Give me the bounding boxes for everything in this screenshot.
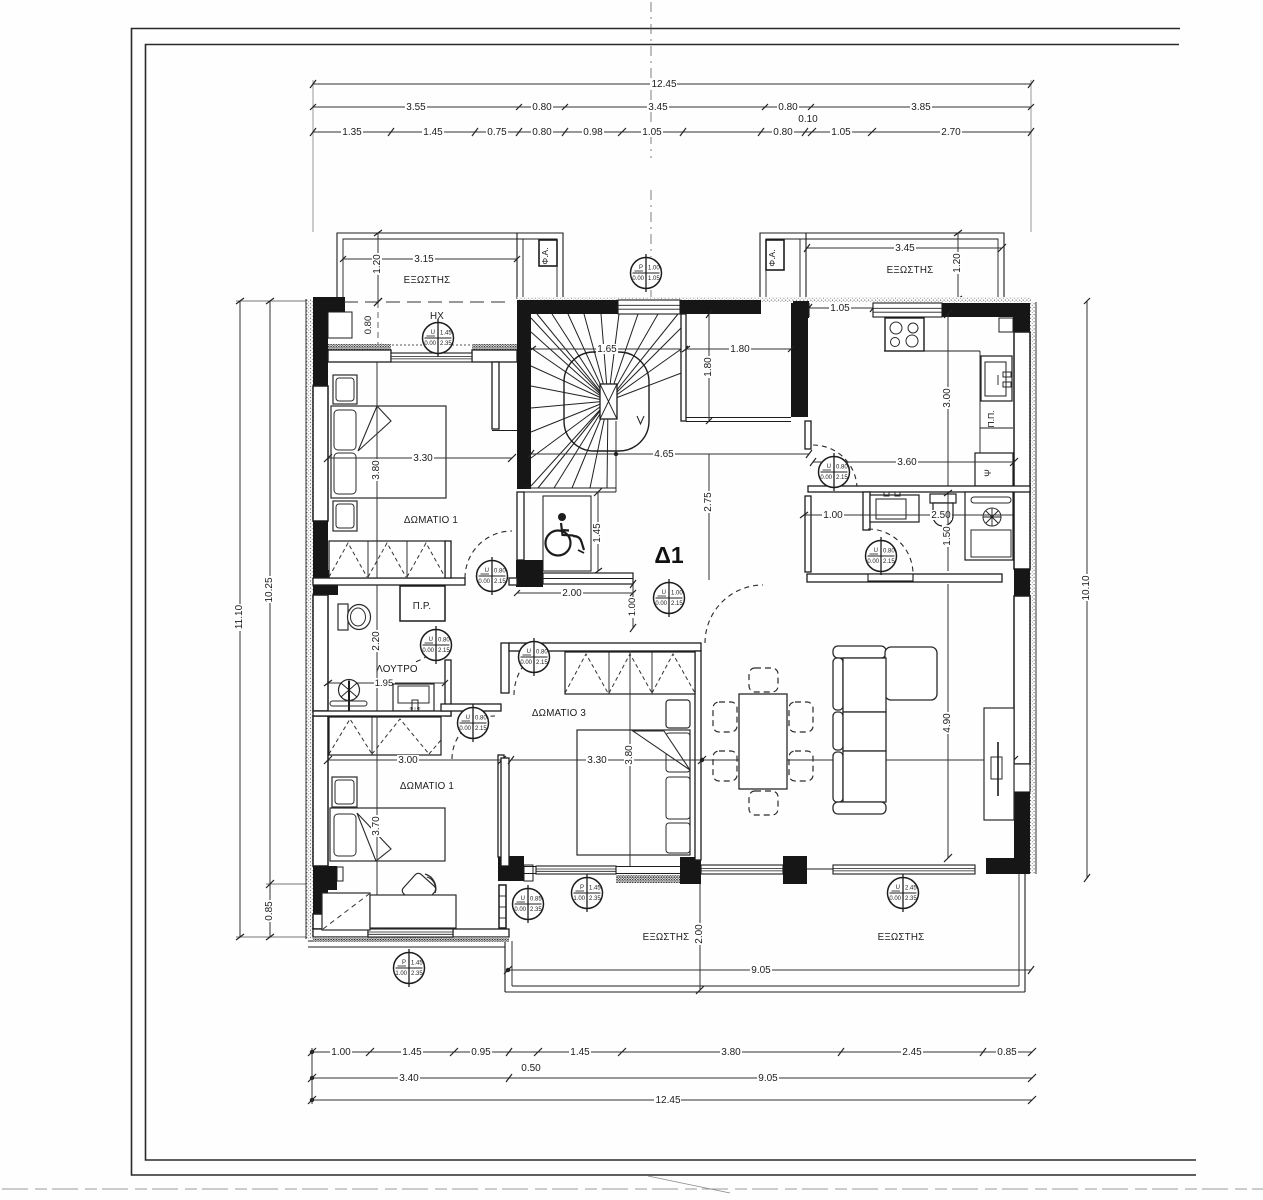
svg-text:0.00: 0.00 bbox=[655, 601, 667, 607]
svg-text:10.10: 10.10 bbox=[1081, 575, 1092, 600]
svg-text:U: U bbox=[874, 548, 878, 554]
svg-text:ΔΩΜΑΤΙΟ 3: ΔΩΜΑΤΙΟ 3 bbox=[532, 708, 586, 719]
svg-text:U: U bbox=[896, 885, 900, 891]
svg-text:1.05: 1.05 bbox=[831, 127, 851, 138]
svg-text:1.45: 1.45 bbox=[592, 523, 603, 543]
svg-text:Π.Π.: Π.Π. bbox=[986, 411, 996, 428]
svg-text:1.45: 1.45 bbox=[423, 127, 443, 138]
svg-text:0.75: 0.75 bbox=[487, 127, 507, 138]
svg-text:0.80: 0.80 bbox=[532, 102, 552, 113]
svg-text:0.00: 0.00 bbox=[459, 726, 471, 732]
svg-text:0.80: 0.80 bbox=[363, 316, 374, 335]
svg-text:0.00: 0.00 bbox=[889, 896, 901, 902]
svg-text:0.80: 0.80 bbox=[438, 638, 450, 644]
svg-text:3.80: 3.80 bbox=[624, 745, 635, 765]
svg-text:2.45: 2.45 bbox=[905, 886, 917, 892]
svg-text:2.75: 2.75 bbox=[703, 492, 714, 512]
svg-text:3.60: 3.60 bbox=[897, 457, 917, 468]
svg-text:Φ.Α.: Φ.Α. bbox=[540, 247, 550, 264]
svg-text:U: U bbox=[466, 715, 470, 721]
svg-text:1.95: 1.95 bbox=[375, 678, 394, 689]
svg-text:0.85: 0.85 bbox=[530, 897, 542, 903]
svg-text:3.55: 3.55 bbox=[406, 102, 426, 113]
svg-text:12.45: 12.45 bbox=[651, 79, 676, 90]
svg-text:1.00: 1.00 bbox=[823, 510, 843, 521]
svg-text:1.05: 1.05 bbox=[648, 276, 660, 282]
svg-text:ΕΞΩΣΤΗΣ: ΕΞΩΣΤΗΣ bbox=[404, 275, 451, 286]
svg-text:0.80: 0.80 bbox=[778, 102, 798, 113]
svg-text:0.10: 0.10 bbox=[798, 114, 818, 125]
svg-text:U: U bbox=[485, 568, 489, 574]
svg-text:1.80: 1.80 bbox=[730, 344, 750, 355]
svg-text:2.15: 2.15 bbox=[836, 475, 848, 481]
svg-text:2.15: 2.15 bbox=[475, 726, 487, 732]
svg-text:3.30: 3.30 bbox=[587, 755, 607, 766]
svg-text:0.00: 0.00 bbox=[478, 579, 490, 585]
svg-text:2.15: 2.15 bbox=[536, 660, 548, 666]
svg-text:3.80: 3.80 bbox=[371, 460, 382, 480]
svg-text:0.80: 0.80 bbox=[494, 569, 506, 575]
svg-text:3.85: 3.85 bbox=[911, 102, 931, 113]
svg-text:0.00: 0.00 bbox=[514, 907, 526, 913]
svg-text:3.00: 3.00 bbox=[398, 755, 418, 766]
svg-text:2.35: 2.35 bbox=[440, 341, 452, 347]
svg-text:P: P bbox=[580, 885, 584, 891]
svg-text:11.10: 11.10 bbox=[234, 604, 245, 629]
svg-text:U: U bbox=[662, 590, 666, 596]
svg-text:Π.Ρ.: Π.Ρ. bbox=[413, 601, 432, 612]
svg-text:0.00: 0.00 bbox=[632, 276, 644, 282]
svg-text:1.65: 1.65 bbox=[597, 344, 617, 355]
svg-text:1.45: 1.45 bbox=[589, 886, 601, 892]
svg-text:0.85: 0.85 bbox=[264, 901, 275, 921]
svg-text:3.15: 3.15 bbox=[414, 254, 434, 265]
svg-text:3.00: 3.00 bbox=[942, 388, 953, 408]
svg-text:ΔΩΜΑΤΙΟ 1: ΔΩΜΑΤΙΟ 1 bbox=[404, 515, 458, 526]
svg-text:2.15: 2.15 bbox=[438, 648, 450, 654]
svg-text:3.70: 3.70 bbox=[371, 816, 382, 836]
svg-text:ΕΞΩΣΤΗΣ: ΕΞΩΣΤΗΣ bbox=[887, 265, 934, 276]
svg-text:P: P bbox=[639, 265, 643, 271]
svg-text:1.35: 1.35 bbox=[342, 127, 362, 138]
svg-text:9.05: 9.05 bbox=[751, 965, 771, 976]
svg-text:1.45: 1.45 bbox=[440, 331, 452, 337]
svg-text:1.45: 1.45 bbox=[570, 1047, 590, 1058]
svg-text:2.45: 2.45 bbox=[902, 1047, 922, 1058]
svg-text:1.80: 1.80 bbox=[703, 357, 714, 377]
svg-text:1.50: 1.50 bbox=[942, 526, 953, 546]
svg-text:0.85: 0.85 bbox=[997, 1047, 1017, 1058]
svg-text:2.00: 2.00 bbox=[694, 924, 705, 944]
svg-text:0.00: 0.00 bbox=[520, 660, 532, 666]
svg-text:U: U bbox=[527, 649, 531, 655]
svg-text:U: U bbox=[827, 464, 831, 470]
svg-text:Φ.Α.: Φ.Α. bbox=[767, 249, 777, 266]
svg-text:0.00: 0.00 bbox=[867, 559, 879, 565]
svg-text:0.98: 0.98 bbox=[583, 127, 603, 138]
svg-text:1.00: 1.00 bbox=[395, 971, 407, 977]
svg-text:1.00: 1.00 bbox=[648, 266, 660, 272]
svg-text:ΛΟΥΤΡΟ: ΛΟΥΤΡΟ bbox=[376, 664, 418, 675]
svg-text:0.80: 0.80 bbox=[883, 549, 895, 555]
svg-text:9.05: 9.05 bbox=[758, 1073, 778, 1084]
svg-text:4.65: 4.65 bbox=[654, 449, 674, 460]
svg-text:Δ1: Δ1 bbox=[654, 542, 684, 568]
svg-text:2.15: 2.15 bbox=[494, 579, 506, 585]
svg-text:2.35: 2.35 bbox=[905, 896, 917, 902]
svg-text:0.80: 0.80 bbox=[836, 465, 848, 471]
svg-text:1.00: 1.00 bbox=[331, 1047, 351, 1058]
svg-text:3.80: 3.80 bbox=[721, 1047, 741, 1058]
svg-text:2.20: 2.20 bbox=[371, 631, 382, 651]
svg-text:2.35: 2.35 bbox=[589, 896, 601, 902]
svg-text:2.15: 2.15 bbox=[671, 601, 683, 607]
svg-text:U: U bbox=[431, 330, 435, 336]
svg-text:1.05: 1.05 bbox=[642, 127, 662, 138]
svg-text:ΗΧ: ΗΧ bbox=[430, 311, 444, 322]
svg-text:P: P bbox=[402, 960, 406, 966]
svg-text:0.50: 0.50 bbox=[521, 1063, 541, 1074]
svg-text:3.40: 3.40 bbox=[399, 1073, 419, 1084]
svg-text:3.45: 3.45 bbox=[648, 102, 668, 113]
svg-text:ΕΞΩΣΤΗΣ: ΕΞΩΣΤΗΣ bbox=[643, 932, 690, 943]
svg-text:3.30: 3.30 bbox=[413, 453, 433, 464]
svg-text:U: U bbox=[429, 637, 433, 643]
svg-text:1.05: 1.05 bbox=[830, 303, 850, 314]
svg-text:0.80: 0.80 bbox=[536, 650, 548, 656]
svg-text:0.95: 0.95 bbox=[471, 1047, 491, 1058]
svg-text:Φ Ι Φ: Φ Ι Φ bbox=[410, 706, 421, 711]
svg-text:12.45: 12.45 bbox=[655, 1095, 680, 1106]
svg-text:1.20: 1.20 bbox=[372, 254, 383, 274]
svg-text:2.15: 2.15 bbox=[883, 559, 895, 565]
svg-text:2.00: 2.00 bbox=[562, 588, 582, 599]
svg-text:ΕΞΩΣΤΗΣ: ΕΞΩΣΤΗΣ bbox=[878, 932, 925, 943]
svg-text:1.45: 1.45 bbox=[402, 1047, 422, 1058]
svg-text:4.90: 4.90 bbox=[942, 713, 953, 733]
svg-text:2.70: 2.70 bbox=[941, 127, 961, 138]
svg-text:0.00: 0.00 bbox=[424, 341, 436, 347]
svg-text:ΔΩΜΑΤΙΟ 1: ΔΩΜΑΤΙΟ 1 bbox=[400, 781, 454, 792]
svg-text:0.00: 0.00 bbox=[820, 475, 832, 481]
svg-text:0.80: 0.80 bbox=[773, 127, 793, 138]
svg-text:0.00: 0.00 bbox=[422, 648, 434, 654]
svg-text:1.00: 1.00 bbox=[573, 896, 585, 902]
svg-text:0.80: 0.80 bbox=[475, 716, 487, 722]
svg-text:U: U bbox=[521, 896, 525, 902]
svg-text:0.80: 0.80 bbox=[532, 127, 552, 138]
svg-text:1.00: 1.00 bbox=[671, 591, 683, 597]
svg-text:1.20: 1.20 bbox=[952, 253, 963, 273]
svg-text:3.45: 3.45 bbox=[895, 243, 915, 254]
svg-text:2.35: 2.35 bbox=[411, 971, 423, 977]
svg-text:1.00: 1.00 bbox=[627, 598, 638, 617]
svg-text:1.45: 1.45 bbox=[411, 961, 423, 967]
svg-text:2.35: 2.35 bbox=[530, 907, 542, 913]
svg-text:Ψ: Ψ bbox=[983, 469, 993, 477]
svg-text:10.25: 10.25 bbox=[264, 577, 275, 602]
